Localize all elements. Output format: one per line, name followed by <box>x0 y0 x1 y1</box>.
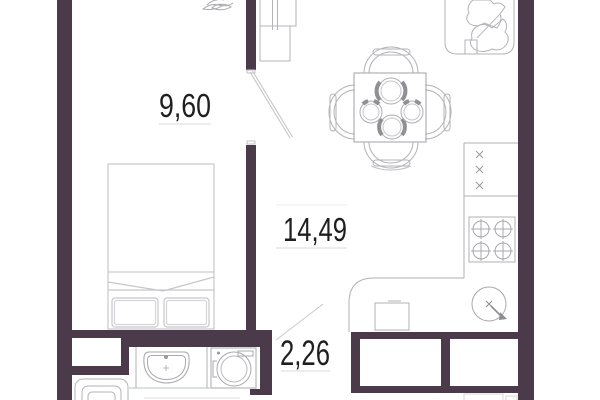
svg-text:14,49: 14,49 <box>283 211 347 248</box>
svg-text:9,60: 9,60 <box>159 87 211 124</box>
svg-text:2,26: 2,26 <box>280 334 330 373</box>
